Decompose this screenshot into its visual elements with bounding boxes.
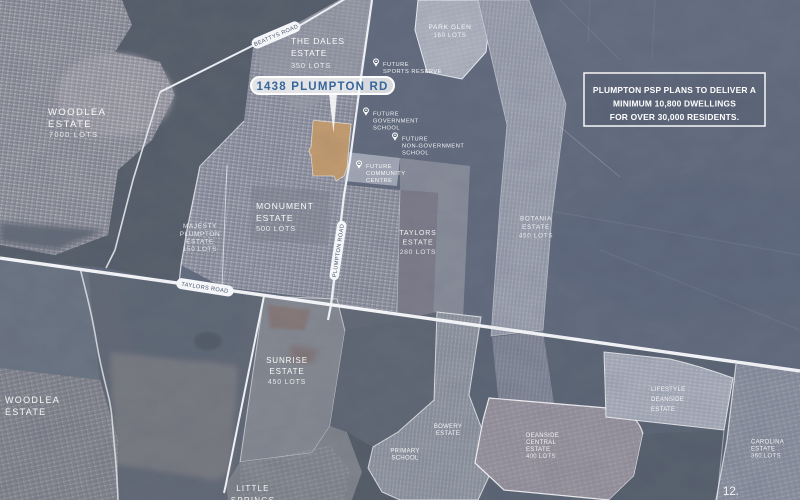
svg-text:ESTATE: ESTATE	[436, 431, 460, 437]
svg-text:ESTATE: ESTATE	[403, 240, 434, 247]
svg-text:ESTATE: ESTATE	[5, 407, 46, 417]
svg-text:GOVERNMENT: GOVERNMENT	[373, 119, 419, 125]
svg-text:450 LOTS: 450 LOTS	[268, 379, 306, 386]
svg-text:PLUMPTON: PLUMPTON	[180, 231, 220, 238]
svg-text:FUTURE: FUTURE	[383, 62, 409, 68]
svg-text:150 LOTS: 150 LOTS	[183, 246, 217, 253]
svg-text:ESTATE: ESTATE	[651, 407, 675, 413]
svg-text:BOWERY: BOWERY	[434, 424, 462, 430]
svg-text:280 LOTS: 280 LOTS	[400, 249, 437, 256]
svg-text:ESTATE: ESTATE	[269, 367, 304, 376]
svg-text:PARK GLEN: PARK GLEN	[428, 24, 471, 31]
svg-text:NON-GOVERNMENT: NON-GOVERNMENT	[402, 144, 464, 150]
svg-text:ESTATE: ESTATE	[256, 213, 294, 223]
svg-text:TAYLORS: TAYLORS	[399, 230, 436, 237]
svg-text:400 LOTS: 400 LOTS	[526, 454, 556, 460]
svg-text:DEANSIDE: DEANSIDE	[526, 433, 559, 439]
svg-text:THE DALES: THE DALES	[291, 36, 345, 46]
svg-text:WOODLEA: WOODLEA	[5, 395, 60, 405]
svg-text:FUTURE: FUTURE	[373, 112, 399, 118]
svg-text:ESTATE: ESTATE	[291, 48, 327, 58]
svg-text:FUTURE: FUTURE	[366, 164, 392, 170]
svg-text:LITTLE: LITTLE	[236, 484, 269, 493]
svg-text:ESTATE: ESTATE	[751, 447, 775, 453]
svg-text:SPORTS RESERVE: SPORTS RESERVE	[383, 69, 442, 75]
svg-text:ESTATE: ESTATE	[186, 239, 214, 246]
svg-text:500 LOTS: 500 LOTS	[256, 224, 296, 233]
svg-text:450 LOTS: 450 LOTS	[519, 233, 553, 240]
svg-text:ESTATE: ESTATE	[48, 119, 92, 130]
svg-text:DEANSIDE: DEANSIDE	[651, 397, 684, 403]
svg-text:CENTRE: CENTRE	[366, 178, 392, 184]
svg-text:160 LOTS: 160 LOTS	[433, 32, 466, 39]
svg-text:FUTURE: FUTURE	[402, 137, 428, 143]
svg-text:LIFESTYLE: LIFESTYLE	[651, 387, 685, 393]
svg-text:SCHOOL: SCHOOL	[391, 456, 419, 462]
svg-text:SCHOOL: SCHOOL	[373, 126, 400, 132]
svg-text:FOR OVER 30,000 RESIDENTS.: FOR OVER 30,000 RESIDENTS.	[610, 112, 739, 122]
svg-text:SPRINGS: SPRINGS	[231, 496, 275, 500]
svg-text:PLUMPTON PSP PLANS TO DELIVER: PLUMPTON PSP PLANS TO DELIVER A	[593, 85, 756, 95]
svg-text:7000 LOTS: 7000 LOTS	[49, 130, 98, 139]
svg-text:BOTANIA: BOTANIA	[520, 216, 552, 223]
svg-text:ESTATE: ESTATE	[526, 447, 550, 453]
svg-text:360 LOTS: 360 LOTS	[751, 454, 781, 460]
svg-text:ESTATE: ESTATE	[522, 224, 550, 231]
svg-text:CENTRAL: CENTRAL	[526, 440, 556, 446]
svg-text:MINIMUM 10,800 DWELLINGS: MINIMUM 10,800 DWELLINGS	[613, 99, 736, 109]
svg-text:SUNRISE: SUNRISE	[266, 356, 308, 365]
svg-text:PRIMARY: PRIMARY	[390, 449, 419, 455]
svg-text:12.: 12.	[723, 486, 739, 498]
svg-text:COMMUNITY: COMMUNITY	[366, 171, 406, 177]
svg-text:350 LOTS: 350 LOTS	[291, 61, 331, 70]
svg-text:MONUMENT: MONUMENT	[256, 201, 314, 211]
svg-text:MAJESTY: MAJESTY	[183, 223, 217, 230]
svg-text:SCHOOL: SCHOOL	[402, 151, 429, 157]
svg-text:WOODLEA: WOODLEA	[48, 107, 106, 118]
svg-text:1438 PLUMPTON RD: 1438 PLUMPTON RD	[256, 81, 388, 93]
svg-text:CAROLINA: CAROLINA	[751, 440, 784, 446]
